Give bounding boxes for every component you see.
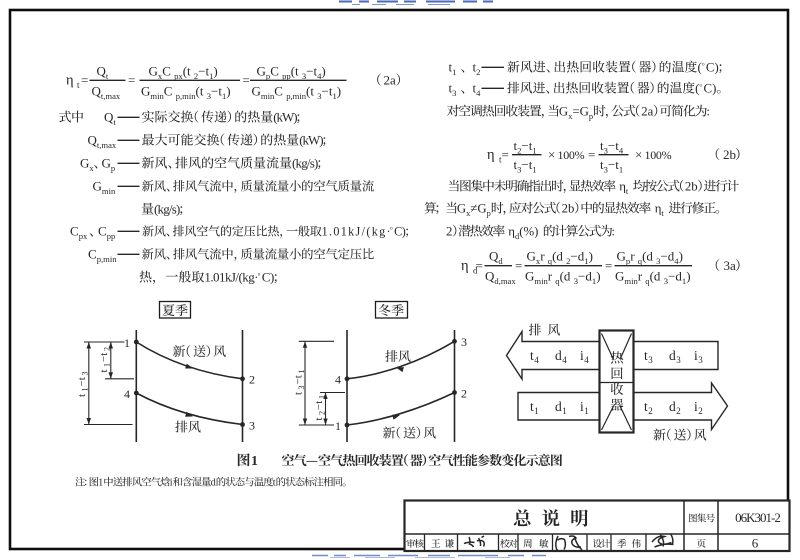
svg-text:px: px	[79, 231, 88, 241]
svg-text:100%: 100%	[558, 148, 585, 162]
svg-text:r: r	[638, 269, 643, 284]
svg-text:1: 1	[584, 406, 589, 416]
svg-text:(t: (t	[306, 84, 314, 99]
svg-text:x: x	[89, 163, 94, 173]
svg-text:=G: =G	[572, 105, 588, 119]
svg-text:=: =	[515, 258, 522, 273]
svg-text:d: d	[555, 348, 562, 363]
svg-text:p,min: p,min	[97, 254, 118, 264]
svg-text:1: 1	[619, 164, 623, 174]
svg-text:−t: −t	[322, 84, 333, 99]
svg-text:): )	[715, 61, 719, 75]
svg-text:1: 1	[335, 419, 341, 433]
svg-text:2: 2	[648, 406, 653, 416]
svg-text:1: 1	[452, 67, 456, 77]
svg-text:t,max: t,max	[97, 140, 117, 150]
svg-text:η: η	[487, 147, 495, 163]
svg-text:): )	[213, 64, 217, 79]
svg-text:6: 6	[752, 536, 759, 551]
svg-text:t: t	[273, 478, 276, 489]
svg-text:2: 2	[698, 406, 703, 416]
svg-text:(d: (d	[642, 249, 653, 264]
svg-text:(d: (d	[552, 249, 563, 264]
svg-text:G: G	[141, 84, 150, 99]
svg-text:G: G	[615, 269, 624, 284]
svg-text:t: t	[626, 187, 629, 196]
svg-text:G: G	[525, 269, 534, 284]
svg-text:C): C)	[394, 225, 406, 239]
svg-text:=: =	[476, 258, 483, 273]
svg-text:η: η	[461, 258, 469, 274]
svg-text:3: 3	[81, 372, 90, 376]
svg-text:−t: −t	[211, 84, 222, 99]
svg-text:min: min	[261, 91, 275, 101]
svg-text:(d: (d	[650, 269, 661, 284]
svg-text:4: 4	[534, 355, 539, 365]
svg-text:(kW): (kW)	[273, 110, 297, 125]
svg-text:C): C)	[262, 270, 274, 285]
svg-text:r: r	[630, 249, 635, 264]
svg-text:2b: 2b	[562, 202, 575, 216]
svg-text:G: G	[617, 249, 626, 264]
svg-text:min: min	[102, 186, 116, 196]
svg-text:1: 1	[562, 406, 567, 416]
svg-text:(t: (t	[183, 64, 191, 79]
svg-text:=: =	[502, 147, 509, 162]
svg-text:(kg/s): (kg/s)	[292, 156, 318, 171]
svg-text:=: =	[588, 147, 595, 162]
svg-text:p: p	[111, 163, 115, 173]
svg-text:06K301-2: 06K301-2	[735, 510, 780, 525]
svg-text:G: G	[93, 179, 102, 194]
svg-text:4: 4	[619, 145, 624, 155]
svg-text:d: d	[498, 256, 503, 266]
svg-text:C: C	[270, 64, 279, 79]
svg-text:−t: −t	[293, 375, 305, 384]
svg-text:min: min	[150, 91, 164, 101]
svg-text:1.01kJ/(kg: 1.01kJ/(kg	[322, 225, 387, 239]
svg-text:C: C	[274, 84, 283, 99]
svg-text:G: G	[149, 64, 158, 79]
svg-text:×: ×	[548, 147, 555, 162]
svg-text:C: C	[98, 224, 107, 239]
svg-text:C: C	[706, 61, 715, 75]
svg-text:1: 1	[103, 363, 112, 367]
svg-text:=: =	[243, 73, 250, 88]
svg-text:C: C	[164, 84, 173, 99]
svg-text:pp: pp	[282, 71, 291, 81]
svg-text:G: G	[80, 156, 89, 171]
svg-text:d: d	[555, 399, 562, 414]
svg-text:G: G	[559, 105, 568, 119]
svg-text:4: 4	[476, 88, 481, 98]
svg-text:(kg/s): (kg/s)	[154, 202, 180, 217]
svg-text:C: C	[162, 64, 171, 79]
svg-text:2: 2	[103, 347, 112, 351]
svg-text:−t: −t	[608, 138, 619, 153]
svg-text:1: 1	[81, 388, 90, 392]
svg-text:°: °	[699, 82, 702, 91]
svg-text:3: 3	[249, 419, 255, 433]
svg-text:3a: 3a	[724, 258, 737, 273]
svg-text:G: G	[257, 64, 266, 79]
svg-text:=: =	[81, 73, 88, 88]
svg-text:1: 1	[532, 164, 536, 174]
svg-text:3: 3	[297, 386, 306, 390]
svg-text:4: 4	[562, 355, 567, 365]
svg-text:t: t	[313, 417, 325, 420]
svg-text:°: °	[390, 225, 393, 234]
svg-text:2b: 2b	[685, 180, 698, 194]
svg-text:t: t	[293, 392, 305, 395]
svg-text:G: G	[457, 202, 466, 216]
svg-text:d: d	[669, 348, 676, 363]
svg-text:): )	[337, 84, 341, 99]
svg-text:3: 3	[452, 88, 456, 98]
svg-text:−d: −d	[668, 269, 682, 284]
svg-text:−d: −d	[578, 269, 592, 284]
svg-text:2b: 2b	[723, 147, 736, 162]
svg-text:−d: −d	[570, 249, 584, 264]
svg-text:C: C	[70, 224, 79, 239]
svg-text:): )	[686, 269, 690, 284]
svg-text:): )	[589, 249, 593, 264]
svg-text:(%): (%)	[519, 225, 538, 239]
svg-text:t: t	[98, 369, 110, 372]
svg-text:−d: −d	[660, 249, 674, 264]
svg-text:2: 2	[249, 373, 255, 387]
svg-text:3: 3	[676, 355, 681, 365]
svg-text:G: G	[252, 84, 261, 99]
svg-text:1: 1	[318, 395, 327, 399]
svg-text:1.01kJ/(kg: 1.01kJ/(kg	[204, 270, 255, 285]
svg-text:min: min	[534, 276, 548, 286]
svg-text:G: G	[527, 249, 536, 264]
svg-text:t,max: t,max	[101, 91, 121, 101]
svg-text:t: t	[77, 80, 80, 90]
svg-text:−t: −t	[98, 353, 110, 362]
svg-text:=: =	[605, 258, 612, 273]
svg-text:η: η	[66, 73, 74, 89]
svg-text:2: 2	[461, 387, 467, 401]
svg-text:2: 2	[476, 67, 480, 77]
svg-text:pp: pp	[107, 231, 116, 241]
svg-text:2: 2	[446, 225, 452, 239]
svg-text:−t: −t	[521, 138, 532, 153]
svg-text:d: d	[669, 399, 676, 414]
svg-text:): )	[679, 249, 683, 264]
svg-text:p,min: p,min	[176, 91, 197, 101]
svg-text:1: 1	[297, 370, 306, 374]
svg-text::: :	[706, 105, 710, 119]
svg-text:4: 4	[584, 355, 589, 365]
svg-text:min: min	[624, 276, 638, 286]
svg-text:t: t	[661, 209, 664, 218]
svg-text:×: ×	[635, 147, 642, 162]
svg-text:°: °	[258, 271, 261, 280]
svg-text:p: p	[487, 209, 491, 218]
svg-text:°: °	[702, 61, 705, 70]
svg-text:d: d	[211, 478, 217, 489]
svg-text:1: 1	[532, 145, 536, 155]
svg-text:G: G	[102, 156, 111, 171]
svg-text:2a: 2a	[641, 105, 653, 119]
svg-text:1: 1	[251, 454, 258, 469]
svg-text:3: 3	[648, 355, 653, 365]
svg-text:2: 2	[676, 406, 681, 416]
svg-text:i: i	[170, 478, 173, 489]
svg-text::: :	[611, 225, 615, 239]
svg-text:t: t	[113, 117, 116, 127]
svg-text:(t: (t	[291, 64, 299, 79]
svg-text:): )	[712, 82, 716, 96]
svg-text:100%: 100%	[645, 148, 672, 162]
svg-text:1: 1	[124, 336, 130, 350]
svg-text:t: t	[106, 71, 109, 81]
svg-text:(d: (d	[560, 269, 571, 284]
svg-text:−t: −t	[76, 377, 88, 386]
svg-text:4: 4	[335, 373, 341, 387]
svg-text:3: 3	[698, 355, 703, 365]
svg-text:p,min: p,min	[286, 91, 307, 101]
svg-text:−t: −t	[306, 64, 317, 79]
svg-text:−t: −t	[521, 157, 532, 172]
svg-text:t: t	[76, 394, 88, 397]
svg-text:C: C	[704, 82, 713, 96]
svg-text:d,max: d,max	[494, 276, 516, 286]
svg-text:4: 4	[124, 387, 130, 401]
svg-text:1: 1	[534, 406, 539, 416]
svg-text:C: C	[88, 247, 97, 262]
svg-text:(kW): (kW)	[299, 133, 323, 148]
svg-text:1: 1	[98, 478, 103, 489]
svg-text:3: 3	[461, 335, 467, 349]
svg-text:≠G: ≠G	[470, 202, 486, 216]
svg-text:): )	[226, 84, 230, 99]
svg-text:−t: −t	[608, 157, 619, 172]
svg-text:): )	[596, 269, 600, 284]
svg-text:(t: (t	[196, 84, 204, 99]
svg-text:−t: −t	[313, 401, 325, 410]
svg-text:=: =	[128, 73, 135, 88]
svg-text:p: p	[589, 112, 593, 121]
svg-text:r: r	[540, 249, 545, 264]
svg-text:2: 2	[318, 411, 327, 415]
svg-text:−t: −t	[198, 64, 209, 79]
svg-text:2a: 2a	[384, 73, 397, 88]
svg-text:r: r	[548, 269, 553, 284]
svg-text:): )	[321, 64, 325, 79]
